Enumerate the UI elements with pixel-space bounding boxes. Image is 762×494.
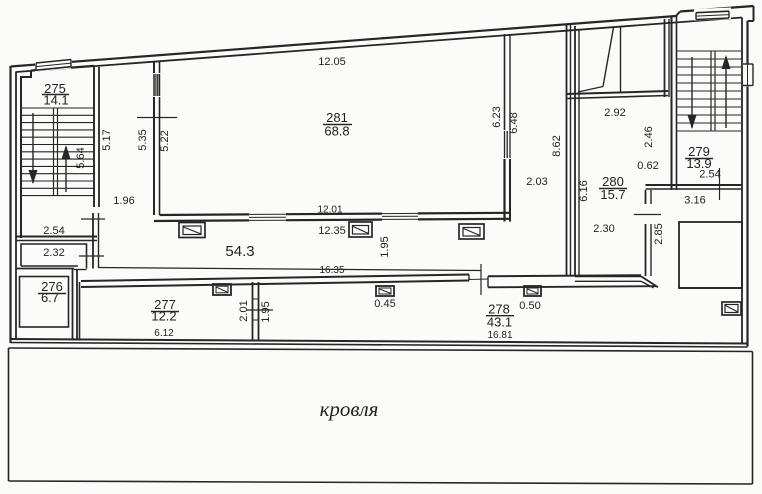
svg-text:6.23: 6.23 bbox=[491, 106, 503, 127]
svg-text:0.45: 0.45 bbox=[374, 298, 395, 310]
svg-text:15.7: 15.7 bbox=[600, 187, 625, 202]
svg-text:5.35: 5.35 bbox=[137, 129, 149, 150]
svg-text:кровля: кровля bbox=[320, 397, 379, 421]
svg-text:54.3: 54.3 bbox=[225, 243, 254, 260]
svg-text:6.48: 6.48 bbox=[508, 112, 520, 133]
svg-text:0.50: 0.50 bbox=[519, 300, 540, 312]
svg-text:1.95: 1.95 bbox=[379, 236, 391, 257]
svg-text:5.22: 5.22 bbox=[159, 130, 171, 151]
svg-text:2.32: 2.32 bbox=[43, 247, 64, 259]
svg-text:16.35: 16.35 bbox=[319, 265, 344, 276]
svg-text:43.1: 43.1 bbox=[487, 314, 512, 329]
svg-text:5.64: 5.64 bbox=[75, 147, 87, 168]
svg-text:2.85: 2.85 bbox=[653, 223, 665, 244]
svg-text:2.92: 2.92 bbox=[604, 107, 625, 119]
svg-text:2.01: 2.01 bbox=[238, 300, 250, 321]
svg-text:14.1: 14.1 bbox=[43, 93, 68, 108]
svg-text:2.46: 2.46 bbox=[643, 126, 655, 147]
svg-text:12.01: 12.01 bbox=[317, 205, 342, 216]
svg-text:1.95: 1.95 bbox=[260, 301, 272, 322]
svg-text:2.54: 2.54 bbox=[43, 225, 64, 237]
svg-text:2.30: 2.30 bbox=[593, 223, 614, 235]
svg-text:2.03: 2.03 bbox=[526, 176, 547, 188]
svg-text:5.17: 5.17 bbox=[101, 129, 113, 150]
svg-text:0.62: 0.62 bbox=[637, 160, 658, 172]
svg-text:12.2: 12.2 bbox=[151, 309, 176, 324]
svg-text:12.35: 12.35 bbox=[318, 225, 346, 237]
svg-text:3.16: 3.16 bbox=[684, 195, 705, 207]
svg-text:6.7: 6.7 bbox=[41, 290, 59, 305]
svg-text:6.16: 6.16 bbox=[578, 180, 590, 201]
svg-text:16.81: 16.81 bbox=[487, 330, 512, 341]
svg-text:12.05: 12.05 bbox=[318, 56, 346, 68]
svg-text:8.62: 8.62 bbox=[551, 135, 563, 156]
svg-text:68.8: 68.8 bbox=[324, 124, 349, 139]
svg-text:2.54: 2.54 bbox=[699, 169, 720, 181]
svg-text:6.12: 6.12 bbox=[154, 328, 174, 339]
svg-text:1.96: 1.96 bbox=[113, 195, 134, 207]
